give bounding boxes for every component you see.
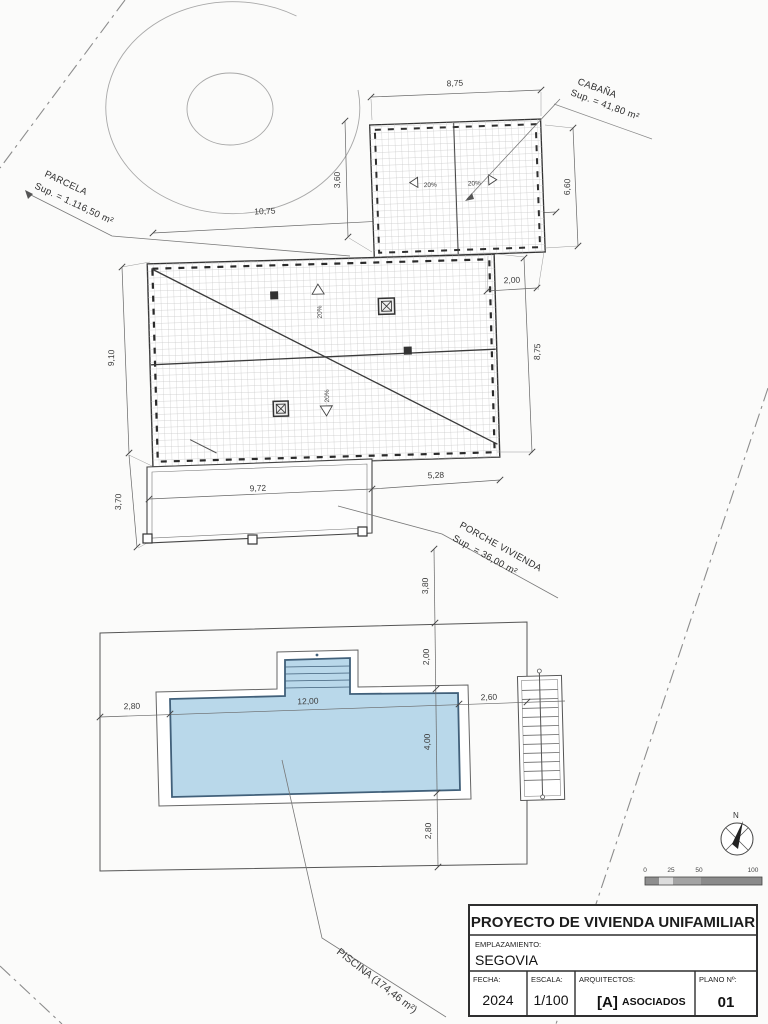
scale-tick-50: 50	[695, 867, 703, 874]
cabana-roof: 20% 20%	[370, 119, 546, 258]
dim-porch-a: 9,72	[249, 483, 266, 494]
chimney-icon	[270, 291, 278, 299]
emplazamiento-value: SEGOVIA	[475, 952, 539, 968]
fecha-value: 2024	[482, 992, 513, 1008]
house-slope-up: 20%	[316, 305, 323, 318]
scale-tick-100: 100	[748, 867, 759, 874]
escala-label: ESCALA:	[531, 975, 563, 984]
cabana-slope-left: 20%	[424, 182, 437, 189]
site-plan-drawing: PARCELA Sup. = 1.116,50 m² 10,75 20% 20%…	[0, 0, 768, 1024]
pool	[156, 650, 471, 806]
contour-outer	[106, 2, 360, 214]
plano-value: 01	[718, 994, 735, 1011]
porch-post	[248, 535, 257, 544]
dim-gap: 2,00	[503, 275, 520, 286]
north-label: N	[733, 811, 739, 820]
contour-inner	[187, 73, 273, 145]
porch	[143, 459, 372, 544]
arquitectos-value: ASOCIADOS	[622, 996, 686, 1008]
house-slope-down: 20%	[324, 389, 331, 402]
dim-pool-length: 12,00	[297, 696, 319, 707]
dim-house-left: 9,10	[106, 349, 117, 366]
north-arrow: N	[721, 811, 753, 855]
terrain-contours	[106, 2, 360, 214]
skylight-icon	[273, 401, 288, 416]
dim-pool-width: 4,00	[422, 733, 432, 750]
scale-tick-0: 0	[643, 867, 647, 874]
pool-step-anchor	[316, 654, 319, 657]
dim-porch-b: 5,28	[427, 470, 444, 481]
arquitectos-logo-icon: [A]	[597, 994, 618, 1011]
title-block: PROYECTO DE VIVIENDA UNIFAMILIAR EMPLAZA…	[469, 905, 757, 1016]
dim-chain-b: 2,00	[421, 648, 431, 665]
skylight-icon	[378, 298, 394, 314]
chimney-icon	[404, 347, 412, 355]
dim-porch-left: 3,70	[113, 493, 124, 510]
dim-cabana-side: 6,60	[562, 178, 573, 195]
dim-chain-a: 3,80	[420, 577, 430, 594]
porch-post	[358, 527, 367, 536]
house-roof: 20% 20%	[147, 254, 500, 467]
pool-ladder	[517, 668, 564, 800]
scale-tick-25: 25	[667, 867, 675, 874]
dim-cabana-top: 8,75	[446, 78, 463, 89]
pool-water	[170, 658, 460, 797]
emplazamiento-label: EMPLAZAMIENTO:	[475, 940, 541, 949]
dim-chain-c: 2,80	[423, 822, 433, 839]
dim-site-top: 10,75	[254, 205, 276, 216]
dim-cabana-offset: 3,60	[332, 171, 342, 188]
piscina-label: PISCINA (174,46 m²)	[334, 946, 419, 1016]
arquitectos-label: ARQUITECTOS:	[579, 975, 635, 984]
parcela-label-group: PARCELA Sup. = 1.116,50 m²	[25, 169, 350, 256]
dim-pool-margin-right: 2,60	[480, 692, 497, 703]
site-plan-page: PARCELA Sup. = 1.116,50 m² 10,75 20% 20%…	[0, 0, 768, 1024]
porch-post	[143, 534, 152, 543]
dim-house-right: 8,75	[532, 343, 543, 360]
escala-value: 1/100	[533, 992, 568, 1008]
dim-pool-margin-left: 2,80	[123, 701, 140, 712]
project-title: PROYECTO DE VIVIENDA UNIFAMILIAR	[471, 914, 755, 931]
fecha-label: FECHA:	[473, 975, 501, 984]
scale-bar: 0 25 50 100	[643, 867, 762, 885]
plano-label: PLANO Nº:	[699, 975, 737, 984]
